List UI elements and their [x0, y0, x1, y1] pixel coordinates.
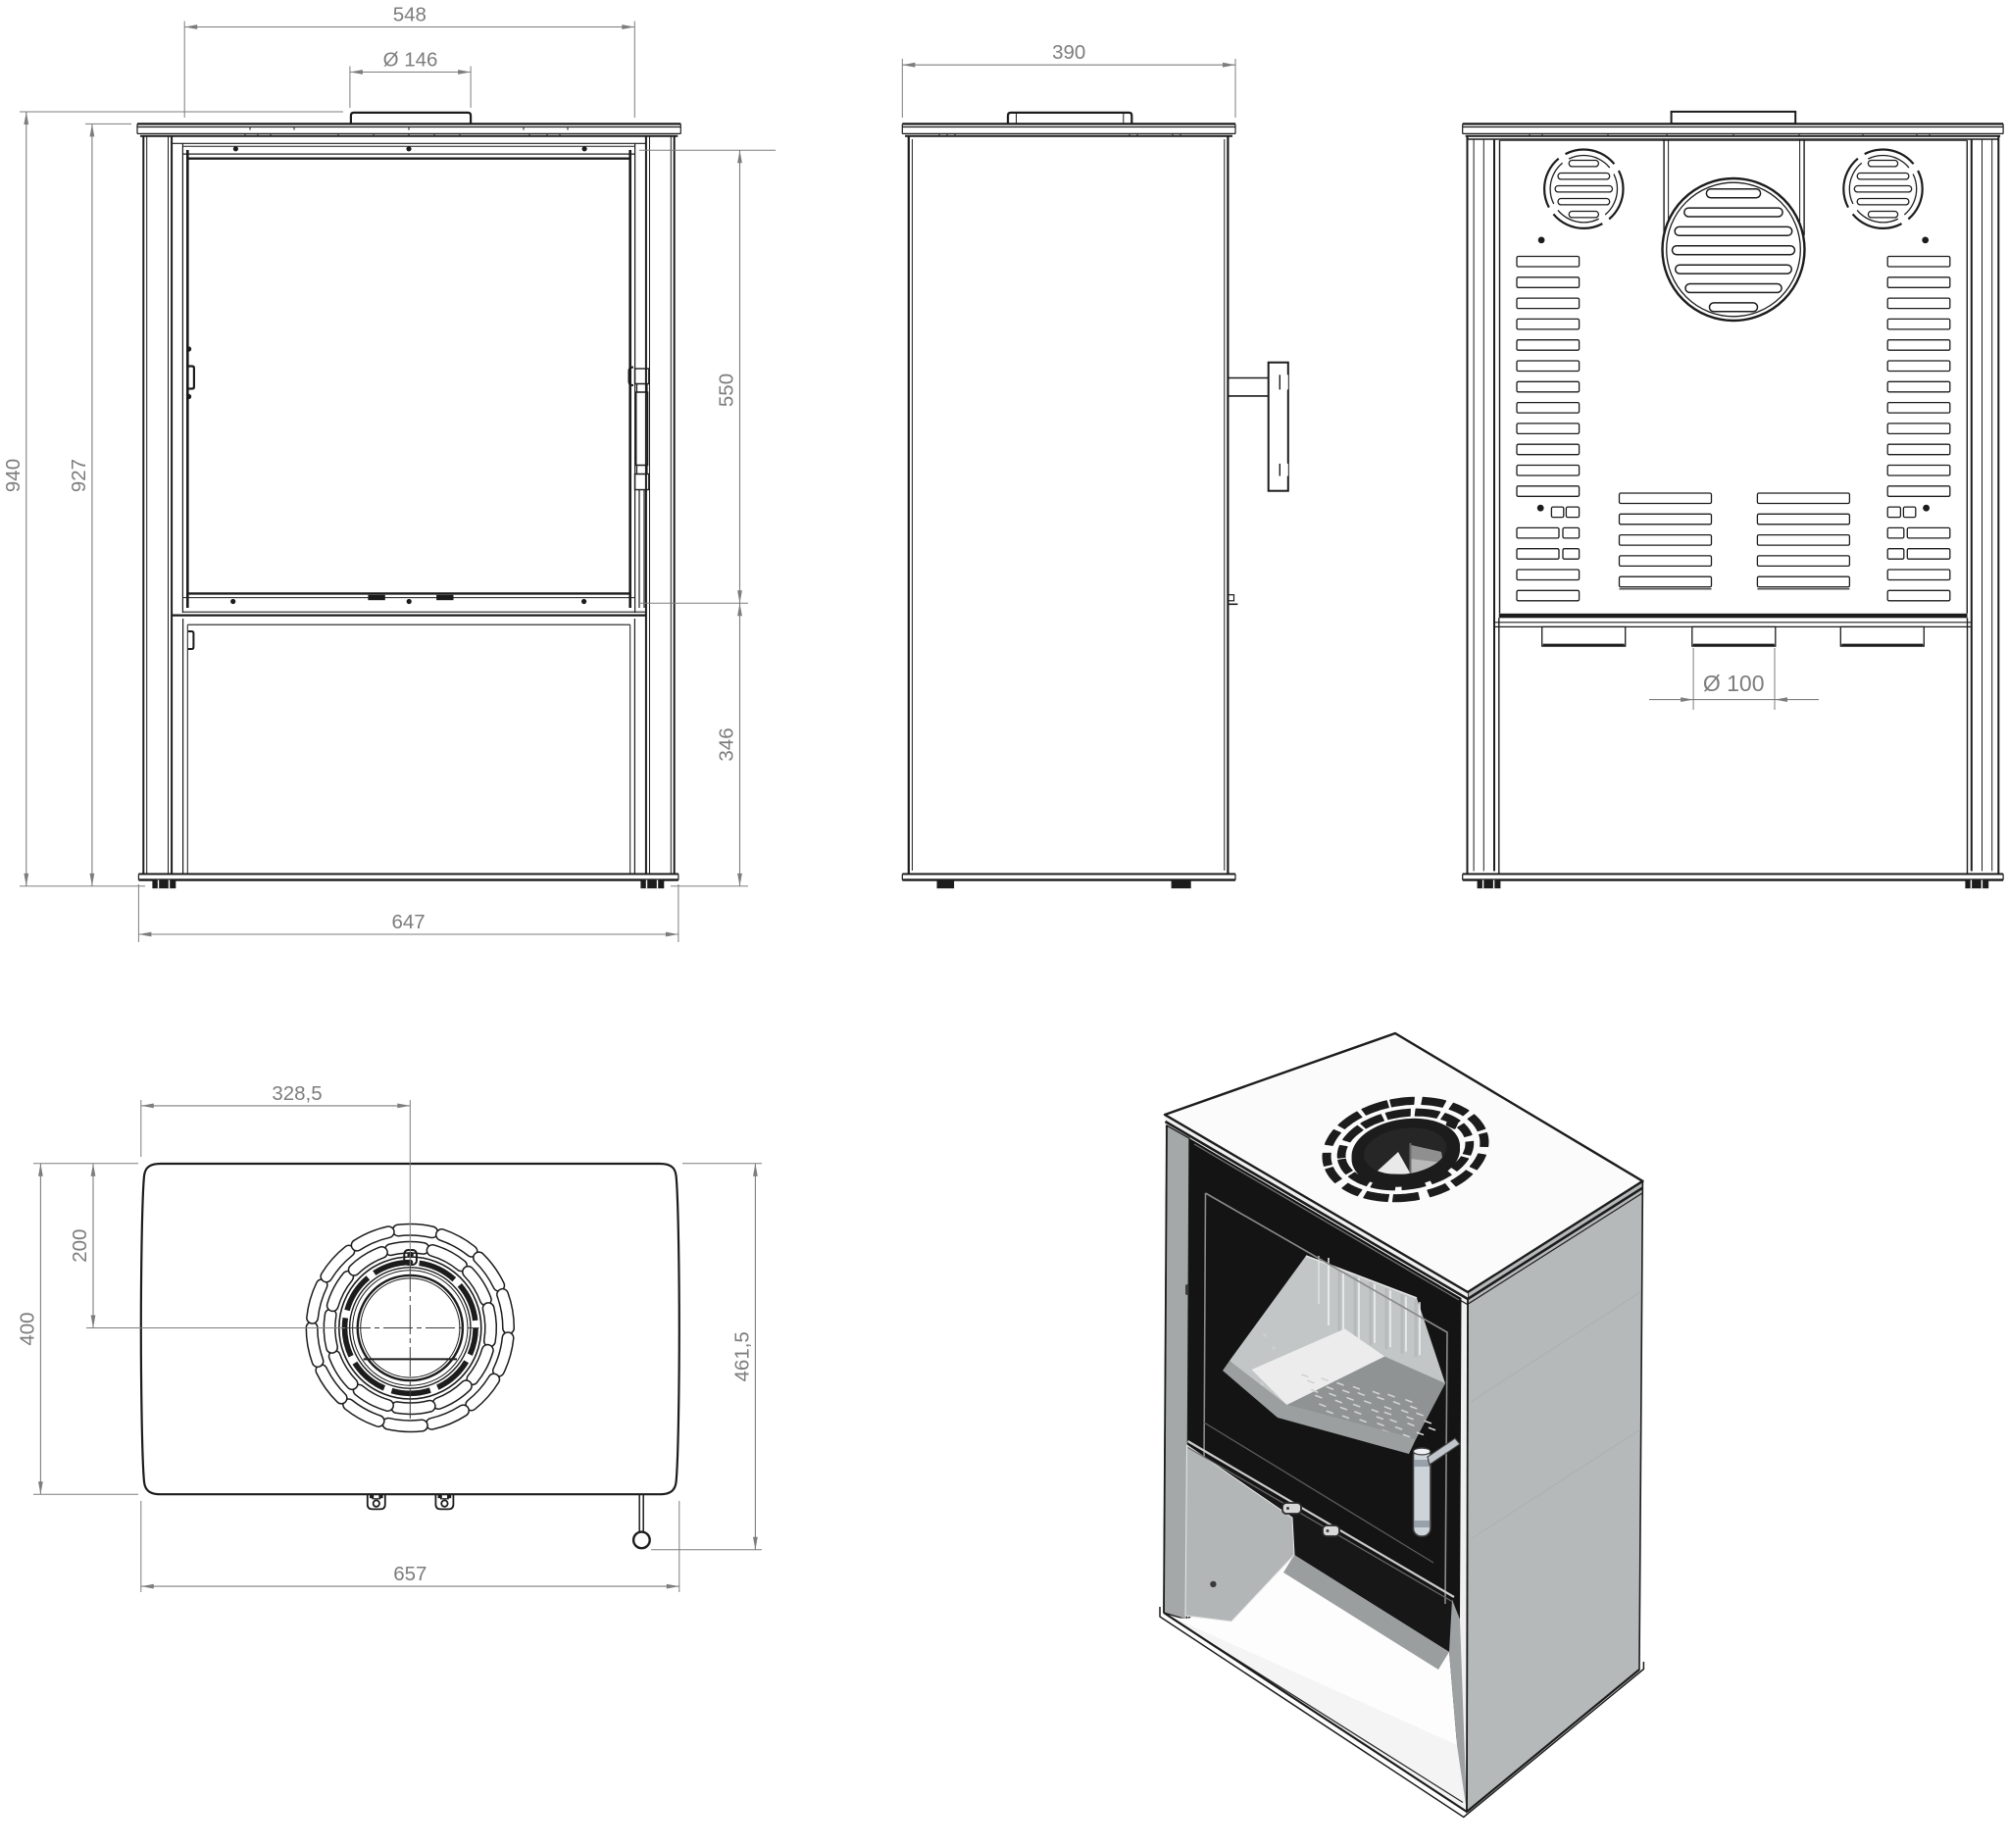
- svg-text:200: 200: [69, 1229, 91, 1263]
- svg-text:647: 647: [391, 911, 425, 933]
- svg-text:390: 390: [1052, 41, 1085, 64]
- svg-text:550: 550: [716, 374, 738, 407]
- svg-text:657: 657: [393, 1563, 427, 1585]
- svg-text:346: 346: [716, 727, 738, 761]
- svg-text:Ø 146: Ø 146: [383, 49, 438, 72]
- svg-text:328,5: 328,5: [272, 1082, 322, 1105]
- svg-text:Ø 100: Ø 100: [1703, 671, 1765, 696]
- svg-text:400: 400: [16, 1312, 38, 1345]
- svg-text:927: 927: [68, 459, 90, 492]
- svg-text:548: 548: [393, 4, 427, 26]
- svg-text:461,5: 461,5: [730, 1331, 753, 1381]
- svg-text:940: 940: [2, 459, 25, 492]
